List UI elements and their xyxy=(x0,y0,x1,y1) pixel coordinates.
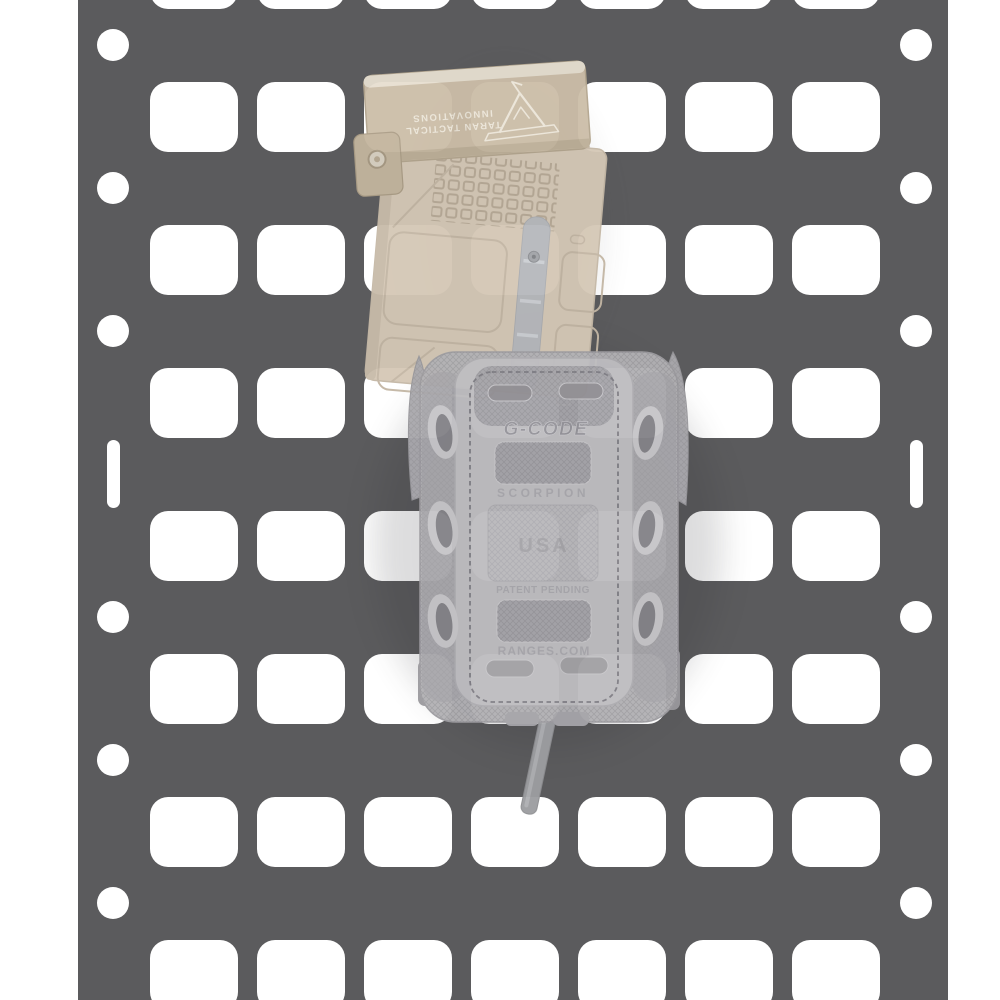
website-text: RANGES.COM xyxy=(498,644,591,658)
pouch-slot-bottom-left xyxy=(486,660,534,677)
origin-text: USA xyxy=(518,535,569,557)
retention-window-top-hatch xyxy=(495,442,591,484)
brand-text: G-CODE xyxy=(504,419,589,440)
pouch-slot-top-left xyxy=(488,385,532,401)
product-svg: TARAN TACTICAL INNOVATIONS xyxy=(0,0,1000,1000)
product-photo: TARAN TACTICAL INNOVATIONS xyxy=(0,0,1000,1000)
model-text: SCORPION xyxy=(497,486,589,500)
pouch-foot-right xyxy=(553,712,589,726)
pouch-slot-top-right xyxy=(559,383,603,399)
retention-window-bottom-hatch xyxy=(497,600,591,642)
mag-pouch: G-CODE SCORPION USA PATENT PENDING RANGE… xyxy=(408,352,688,816)
patent-text: PATENT PENDING xyxy=(496,585,590,596)
pouch-slot-bottom-right xyxy=(560,657,608,674)
pouch-foot-left xyxy=(505,712,539,726)
